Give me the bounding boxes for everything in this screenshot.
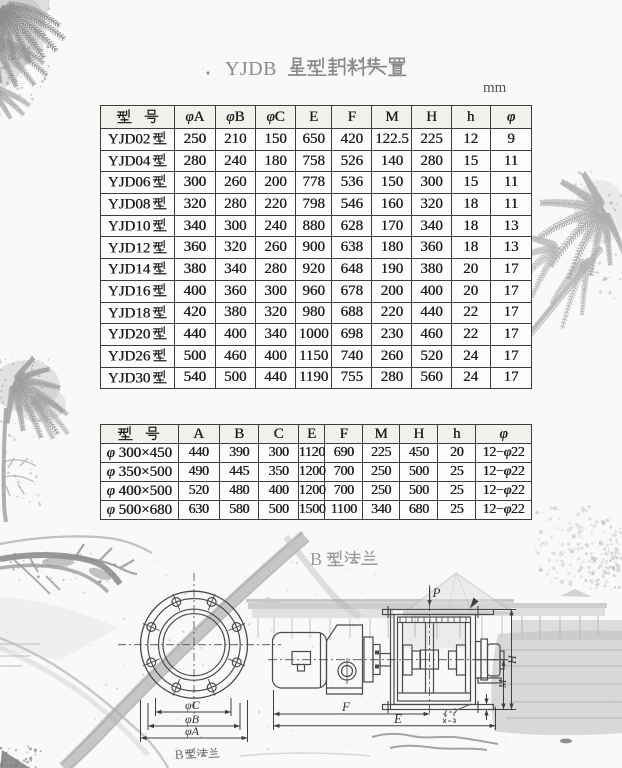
svg-text:φA: φA	[185, 724, 200, 738]
svg-text:M: M	[498, 679, 509, 689]
svg-text:P: P	[432, 585, 441, 600]
svg-text:F: F	[341, 699, 351, 714]
svg-text:E: E	[393, 711, 402, 726]
svg-text:B: B	[174, 747, 184, 762]
svg-text:φC: φC	[185, 698, 201, 712]
svg-text:H: H	[505, 654, 519, 665]
